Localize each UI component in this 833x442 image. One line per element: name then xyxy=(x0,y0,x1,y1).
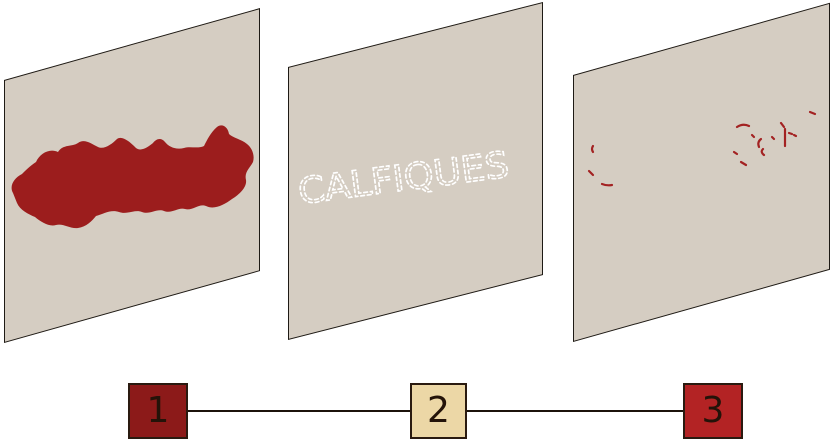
wall-panel-1 xyxy=(4,8,260,343)
wall-panel-3 xyxy=(573,3,830,342)
timeline-node-1: 1 xyxy=(128,383,188,439)
timeline-node-3-label: 3 xyxy=(702,393,725,429)
wall-panel-2 xyxy=(288,2,543,340)
timeline-node-2: 2 xyxy=(410,383,467,439)
timeline-node-3: 3 xyxy=(683,383,743,439)
timeline-node-1-label: 1 xyxy=(147,393,170,429)
timeline-node-2-label: 2 xyxy=(427,393,450,429)
three-stage-wall-figure: CALFIQUES 1 2 3 xyxy=(0,0,833,442)
